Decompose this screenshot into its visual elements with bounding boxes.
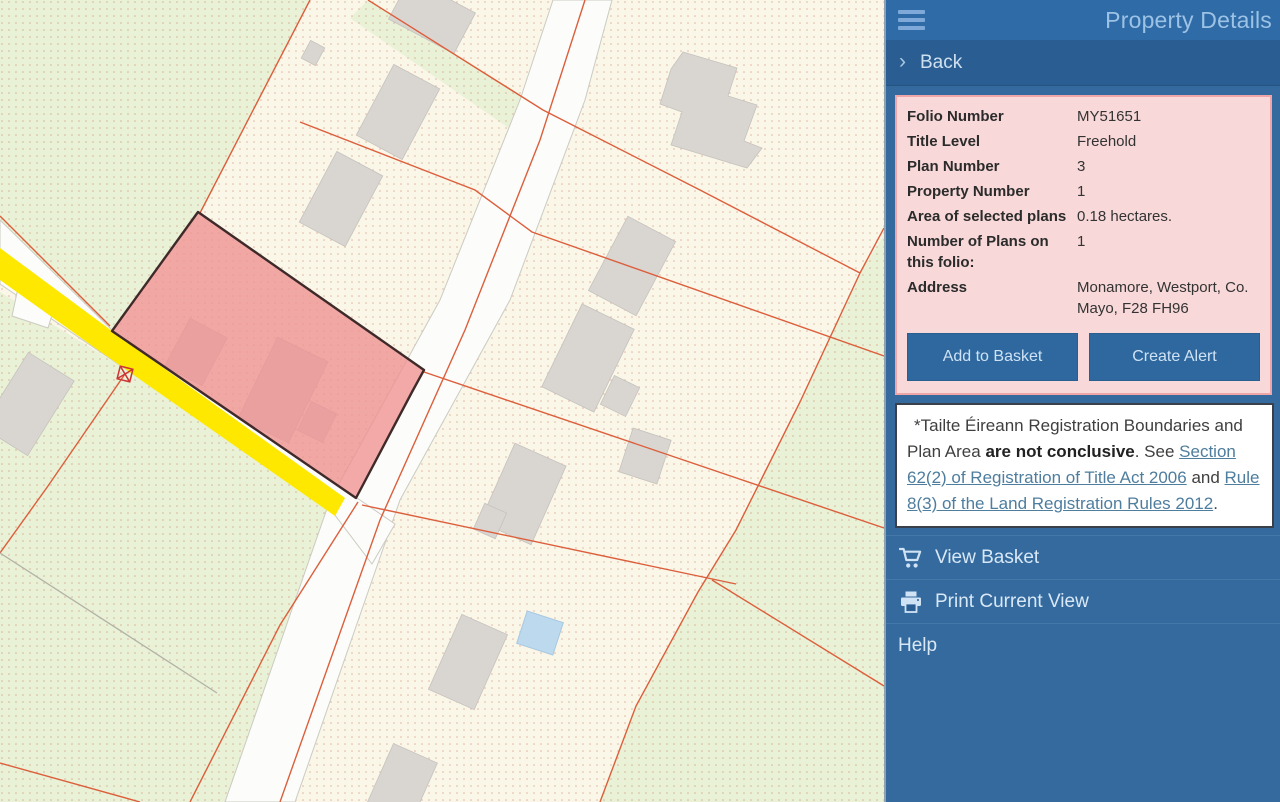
menu-icon[interactable]	[898, 10, 925, 30]
print-current-view-label: Print Current View	[935, 591, 1089, 613]
disclaimer-mid: . See	[1135, 442, 1179, 461]
plan-count-label: Number of Plans on this folio:	[907, 231, 1077, 273]
property-details-card: Folio Number MY51651 Title Level Freehol…	[895, 95, 1272, 395]
detail-row-folio: Folio Number MY51651	[897, 106, 1270, 127]
folio-number-value: MY51651	[1077, 106, 1260, 127]
property-details-panel: Property Details › Back Folio Number MY5…	[884, 0, 1280, 802]
view-basket-label: View Basket	[935, 547, 1039, 569]
create-alert-button[interactable]: Create Alert	[1089, 333, 1260, 381]
detail-row-plan-number: Plan Number 3	[897, 156, 1270, 177]
detail-row-property-number: Property Number 1	[897, 181, 1270, 202]
title-level-value: Freehold	[1077, 131, 1260, 152]
card-actions: Add to Basket Create Alert	[897, 323, 1270, 393]
help-label: Help	[898, 635, 937, 657]
detail-row-area: Area of selected plans 0.18 hectares.	[897, 206, 1270, 227]
view-basket-button[interactable]: View Basket	[886, 535, 1280, 579]
detail-row-title-level: Title Level Freehold	[897, 131, 1270, 152]
property-number-label: Property Number	[907, 181, 1077, 202]
add-to-basket-button[interactable]: Add to Basket	[907, 333, 1078, 381]
help-button[interactable]: Help	[886, 623, 1280, 667]
detail-row-plan-count: Number of Plans on this folio: 1	[897, 231, 1270, 273]
disclaimer-note: *Tailte Éireann Registration Boundaries …	[895, 403, 1274, 528]
map-viewport[interactable]	[0, 0, 884, 802]
plan-number-label: Plan Number	[907, 156, 1077, 177]
area-value: 0.18 hectares.	[1077, 206, 1260, 227]
disclaimer-end: .	[1213, 494, 1218, 513]
cart-icon	[899, 547, 923, 569]
map[interactable]	[0, 0, 884, 802]
folio-number-label: Folio Number	[907, 106, 1077, 127]
plan-count-value: 1	[1077, 231, 1260, 273]
panel-header: Property Details	[886, 0, 1280, 40]
printer-icon	[899, 591, 923, 613]
page-title: Property Details	[1105, 7, 1272, 34]
back-label: Back	[920, 52, 962, 74]
disclaimer-bold: are not conclusive	[985, 442, 1134, 461]
chevron-right-icon: ›	[899, 51, 906, 72]
area-label: Area of selected plans	[907, 206, 1077, 227]
print-current-view-button[interactable]: Print Current View	[886, 579, 1280, 623]
plan-number-value: 3	[1077, 156, 1260, 177]
address-value: Monamore, Westport, Co. Mayo, F28 FH96	[1077, 277, 1260, 319]
back-button[interactable]: › Back	[886, 40, 1280, 86]
property-number-value: 1	[1077, 181, 1260, 202]
address-label: Address	[907, 277, 1077, 319]
panel-menu: View Basket Print Current View Help	[886, 535, 1280, 667]
title-level-label: Title Level	[907, 131, 1077, 152]
disclaimer-and: and	[1187, 468, 1225, 487]
detail-row-address: Address Monamore, Westport, Co. Mayo, F2…	[897, 277, 1270, 319]
